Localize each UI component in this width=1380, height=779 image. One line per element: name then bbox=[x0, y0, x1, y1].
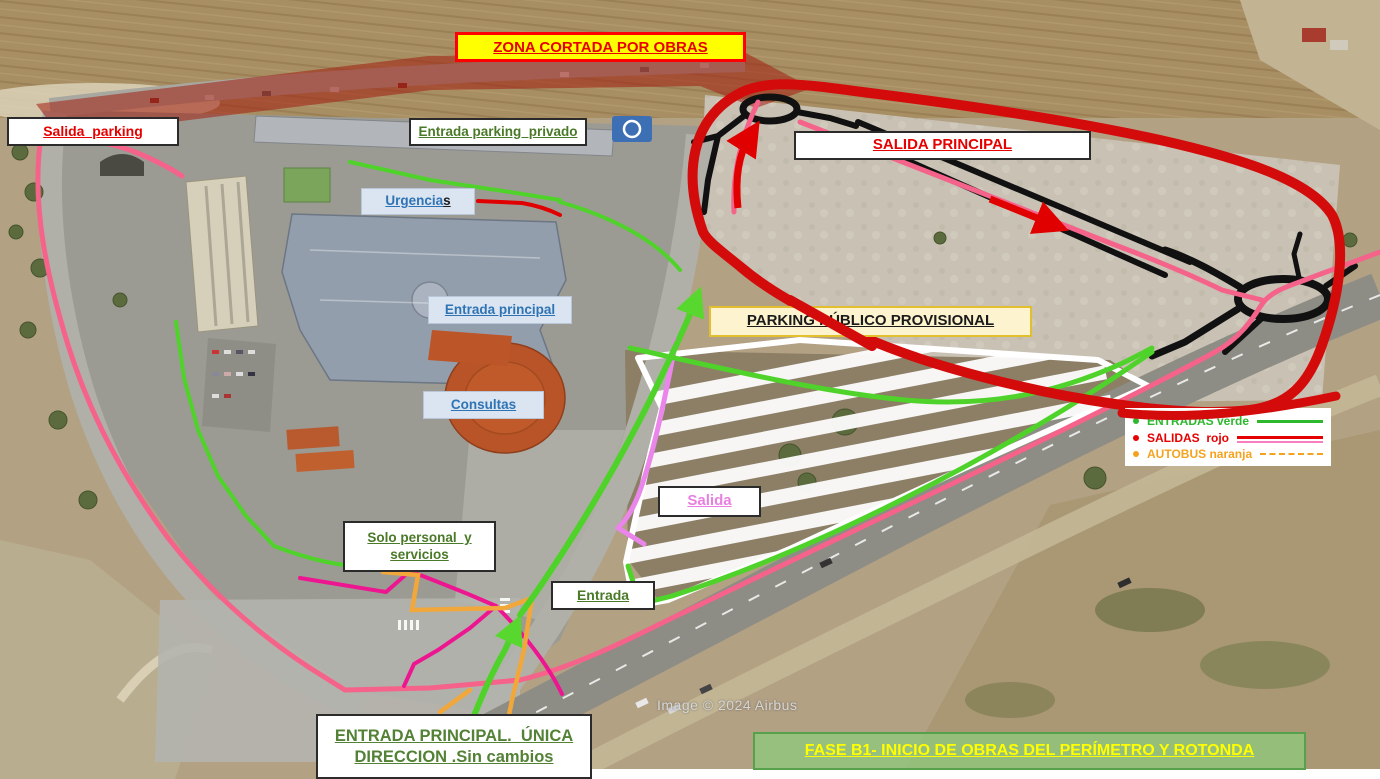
legend-line-autobus bbox=[1260, 453, 1323, 455]
slide-margin bbox=[592, 769, 1380, 779]
consultas-label: Consultas bbox=[423, 391, 544, 419]
legend: ENTRADAS verde SALIDAS rojo AUTOBUS nara… bbox=[1125, 408, 1331, 466]
entrada-provisional-label: Entrada bbox=[551, 581, 655, 610]
entrada-parking-privado-label: Entrada parking privado bbox=[409, 118, 587, 146]
legend-row-salidas: SALIDAS rojo bbox=[1133, 430, 1323, 446]
legend-row-autobus: AUTOBUS naranja bbox=[1133, 446, 1323, 462]
aerial-map-canvas bbox=[0, 0, 1380, 779]
airbus-watermark: Image © 2024 Airbus bbox=[657, 697, 797, 713]
salida-parking-label: Salida parking bbox=[7, 117, 179, 146]
legend-line-entradas bbox=[1257, 420, 1323, 423]
fase-b1-text: FASE B1- INICIO DE OBRAS DEL PERÍMETRO Y… bbox=[805, 742, 1255, 760]
legend-line-salidas bbox=[1237, 436, 1323, 439]
urgencias-label: Urgencias bbox=[361, 188, 475, 215]
legend-bullet-icon bbox=[1133, 418, 1139, 424]
zona-cortada-banner: ZONA CORTADA POR OBRAS bbox=[455, 32, 746, 62]
solo-personal-servicios-label: Solo personal y servicios bbox=[343, 521, 496, 572]
site-plan: ZONA CORTADA POR OBRAS Salida parking En… bbox=[0, 0, 1380, 779]
legend-bullet-icon bbox=[1133, 451, 1139, 457]
entrada-principal-unica-label: ENTRADA PRINCIPAL. ÚNICA DIRECCION .Sin … bbox=[316, 714, 592, 779]
entrada-principal-label: Entrada principal bbox=[428, 296, 572, 324]
salida-provisional-label: Salida bbox=[658, 486, 761, 517]
zona-cortada-text: ZONA CORTADA POR OBRAS bbox=[493, 39, 707, 56]
legend-bullet-icon bbox=[1133, 435, 1139, 441]
parking-publico-provisional-label: PARKING PÚBLICO PROVISIONAL bbox=[709, 306, 1032, 337]
fase-b1-banner: FASE B1- INICIO DE OBRAS DEL PERÍMETRO Y… bbox=[753, 732, 1306, 770]
legend-row-entradas: ENTRADAS verde bbox=[1133, 413, 1323, 429]
salida-principal-label: SALIDA PRINCIPAL bbox=[794, 131, 1091, 160]
